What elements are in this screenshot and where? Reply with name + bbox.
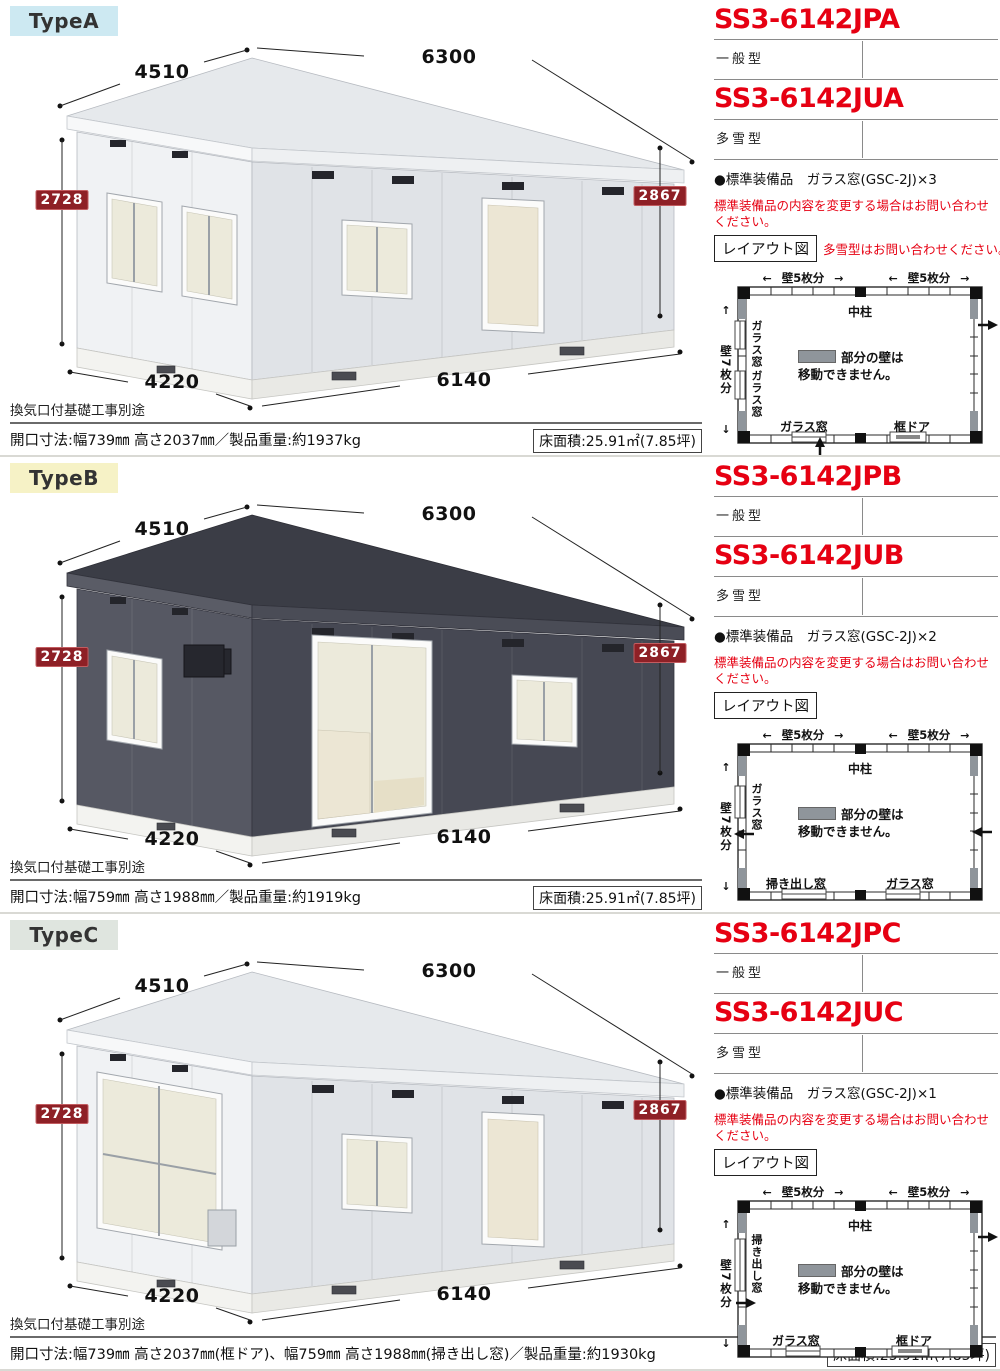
plan-bottom-window-label: ガラス窓 — [886, 875, 934, 892]
opening-spec: 開口寸法:幅739㎜ 高さ2037㎜／製品重量:約1937kg — [10, 429, 361, 450]
arrow-left-icon: ← — [889, 729, 898, 742]
floor-area-box: 床面積:25.91㎡(7.85坪) — [533, 886, 702, 910]
building-illustration-c: 4510 6300 2728 2867 4220 6140 — [12, 942, 702, 1334]
layout-figure-label: レイアウト図 — [714, 1149, 817, 1176]
dim-height-left-badge: 2728 — [36, 190, 89, 210]
plan-bottom-window-label: ガラス窓 — [772, 1332, 820, 1349]
plan-side-window-label: ガラス窓 — [748, 783, 764, 831]
arrow-up-icon: ↑ — [721, 1218, 730, 1231]
entrance-door — [482, 1112, 544, 1247]
plan-legend: 部分の壁は 移動できません。 — [798, 350, 904, 384]
dim-height-right-badge: 2867 — [634, 643, 687, 663]
dim-height-left-badge: 2728 — [36, 1104, 89, 1124]
arrow-right-icon: → — [960, 272, 969, 285]
utility-box — [208, 1210, 236, 1246]
plan-left-dimension: ↑ 壁7枚分 ↓ — [718, 761, 734, 893]
section-type-b: TypeB — [0, 457, 1000, 914]
product-code-snow: SS3-6142JUC — [714, 997, 998, 1029]
front-window — [512, 675, 577, 747]
dim-depth-top: 4510 — [135, 61, 190, 83]
arrow-right-icon: → — [960, 1186, 969, 1199]
dim-width-bottom: 6140 — [437, 826, 492, 848]
plan-legend: 部分の壁は 移動できません。 — [798, 1264, 904, 1298]
product-info-a: SS3-6142JPA 一般型 SS3-6142JUA 多雪型 ●標準装備品 ガ… — [714, 4, 998, 457]
arrow-down-icon: ↓ — [721, 423, 730, 436]
opening-spec: 開口寸法:幅759㎜ 高さ1988㎜／製品重量:約1919kg — [10, 886, 361, 907]
building-c-drawing — [12, 942, 702, 1334]
floor-plan-c: ←壁5枚分→ ←壁5枚分→ ↑ 壁7枚分 ↓ 中柱 部分の壁は — [714, 1184, 998, 1371]
section-type-a: TypeA 4510 6 — [0, 0, 1000, 457]
center-pillar — [855, 744, 866, 754]
arrow-right-icon: → — [960, 729, 969, 742]
type-row-general: 一般型 — [714, 500, 998, 533]
dim-depth-bottom: 4220 — [145, 371, 200, 393]
product-code-general: SS3-6142JPB — [714, 461, 998, 493]
arrow-up-icon: ↑ — [721, 761, 730, 774]
dim-height-right-badge: 2867 — [634, 186, 687, 206]
arrow-left-icon: ← — [763, 272, 772, 285]
meter-box — [184, 645, 231, 677]
standard-equipment: ●標準装備品 ガラス窓(GSC-2J)×3 — [714, 168, 998, 188]
gray-wall-swatch — [798, 1264, 836, 1277]
dim-width-top: 6300 — [422, 503, 477, 525]
foundation-note: 換気口付基礎工事別途 — [10, 399, 702, 424]
dim-width-top: 6300 — [422, 960, 477, 982]
center-pillar — [855, 287, 866, 297]
plan-side-window-label: ガラス窓 — [748, 320, 764, 368]
side-window-2 — [182, 206, 237, 305]
center-pillar-label: 中柱 — [848, 760, 872, 777]
type-row-general: 一般型 — [714, 957, 998, 990]
notes-b: 換気口付基礎工事別途 開口寸法:幅759㎜ 高さ1988㎜／製品重量:約1919… — [10, 856, 702, 910]
plan-top-dimensions: ←壁5枚分→ ←壁5枚分→ — [740, 1184, 992, 1200]
type-row-snow: 多雪型 — [714, 580, 998, 613]
plan-side-window-label: 掃き出し窓 — [748, 1234, 764, 1294]
plan-bottom-door-label: 框ドア — [894, 418, 930, 435]
floor-plan-a: ←壁5枚分→ ←壁5枚分→ ↑ 壁7枚分 ↓ 中柱 部分の壁は — [714, 270, 998, 457]
dim-depth-top: 4510 — [135, 975, 190, 997]
arrow-left-icon: ← — [889, 1186, 898, 1199]
plan-legend: 部分の壁は 移動できません。 — [798, 807, 904, 841]
type-row-general: 一般型 — [714, 43, 998, 76]
plan-bottom-window-label: 掃き出し窓 — [766, 875, 826, 892]
dim-width-top: 6300 — [422, 46, 477, 68]
plan-top-dimensions: ←壁5枚分→ ←壁5枚分→ — [740, 727, 992, 743]
building-b-drawing — [12, 485, 702, 877]
dim-height-right-badge: 2867 — [634, 1100, 687, 1120]
side-sliding-window — [97, 1072, 222, 1250]
product-code-general: SS3-6142JPA — [714, 4, 998, 36]
arrow-down-icon: ↓ — [721, 1337, 730, 1350]
opening-spec: 開口寸法:幅739㎜ 高さ2037㎜(框ドア)、幅759㎜ 高さ1988㎜(掃き… — [10, 1343, 656, 1364]
arrow-right-icon: → — [834, 729, 843, 742]
plan-left-dimension: ↑ 壁7枚分 ↓ — [718, 1218, 734, 1350]
arrow-right-icon: → — [834, 1186, 843, 1199]
dim-width-bottom: 6140 — [437, 1283, 492, 1305]
center-pillar-label: 中柱 — [848, 1217, 872, 1234]
plan-side-window-label: ガラス窓 — [748, 370, 764, 418]
floor-area-box: 床面積:25.91㎡(7.85坪) — [533, 429, 702, 453]
arrow-down-icon: ↓ — [721, 880, 730, 893]
product-code-general: SS3-6142JPC — [714, 918, 998, 950]
product-code-snow: SS3-6142JUB — [714, 540, 998, 572]
dim-depth-bottom: 4220 — [145, 1285, 200, 1307]
building-illustration-b: 4510 6300 2728 2867 4220 6140 — [12, 485, 702, 877]
building-a-drawing — [12, 28, 702, 420]
arrow-right-icon: → — [834, 272, 843, 285]
layout-figure-label: レイアウト図 — [714, 235, 817, 262]
arrow-left-icon: ← — [763, 1186, 772, 1199]
dim-depth-bottom: 4220 — [145, 828, 200, 850]
standard-equipment: ●標準装備品 ガラス窓(GSC-2J)×2 — [714, 625, 998, 645]
dim-width-bottom: 6140 — [437, 369, 492, 391]
arrow-up-icon: ↑ — [721, 304, 730, 317]
front-window — [342, 220, 412, 299]
plan-bottom-window-label: ガラス窓 — [780, 418, 828, 435]
side-window-1 — [107, 193, 162, 292]
layout-note: 多雪型はお問い合わせください。 — [823, 239, 1000, 258]
sliding-door — [312, 635, 432, 827]
foundation-note: 換気口付基礎工事別途 — [10, 856, 702, 881]
side-window-1 — [107, 650, 162, 749]
warning-note: 標準装備品の内容を変更する場合はお問い合わせください。 — [714, 1112, 998, 1145]
arrow-left-icon: ← — [889, 272, 898, 285]
warning-note: 標準装備品の内容を変更する場合はお問い合わせください。 — [714, 198, 998, 231]
type-row-snow: 多雪型 — [714, 1037, 998, 1070]
gray-wall-swatch — [798, 350, 836, 363]
notes-a: 換気口付基礎工事別途 開口寸法:幅739㎜ 高さ2037㎜／製品重量:約1937… — [10, 399, 702, 453]
warning-note: 標準装備品の内容を変更する場合はお問い合わせください。 — [714, 655, 998, 688]
gray-wall-swatch — [798, 807, 836, 820]
front-window — [342, 1134, 412, 1213]
center-pillar-label: 中柱 — [848, 303, 872, 320]
side-wall — [77, 589, 252, 837]
standard-equipment: ●標準装備品 ガラス窓(GSC-2J)×1 — [714, 1082, 998, 1102]
section-type-c: TypeC — [0, 914, 1000, 1371]
plan-left-dimension: ↑ 壁7枚分 ↓ — [718, 304, 734, 436]
product-info-b: SS3-6142JPB 一般型 SS3-6142JUB 多雪型 ●標準装備品 ガ… — [714, 461, 998, 914]
dim-height-left-badge: 2728 — [36, 647, 89, 667]
arrow-left-icon: ← — [763, 729, 772, 742]
building-illustration-a: 4510 6300 2728 2867 4220 6140 — [12, 28, 702, 420]
dim-depth-top: 4510 — [135, 518, 190, 540]
floor-plan-b: ←壁5枚分→ ←壁5枚分→ ↑ 壁7枚分 ↓ 中柱 部分の壁は — [714, 727, 998, 914]
plan-top-dimensions: ←壁5枚分→ ←壁5枚分→ — [740, 270, 992, 286]
type-row-snow: 多雪型 — [714, 123, 998, 156]
plan-bottom-door-label: 框ドア — [896, 1332, 932, 1349]
center-pillar — [855, 1201, 866, 1211]
product-info-c: SS3-6142JPC 一般型 SS3-6142JUC 多雪型 ●標準装備品 ガ… — [714, 918, 998, 1371]
layout-figure-label: レイアウト図 — [714, 692, 817, 719]
product-code-snow: SS3-6142JUA — [714, 83, 998, 115]
entrance-door — [482, 198, 544, 333]
